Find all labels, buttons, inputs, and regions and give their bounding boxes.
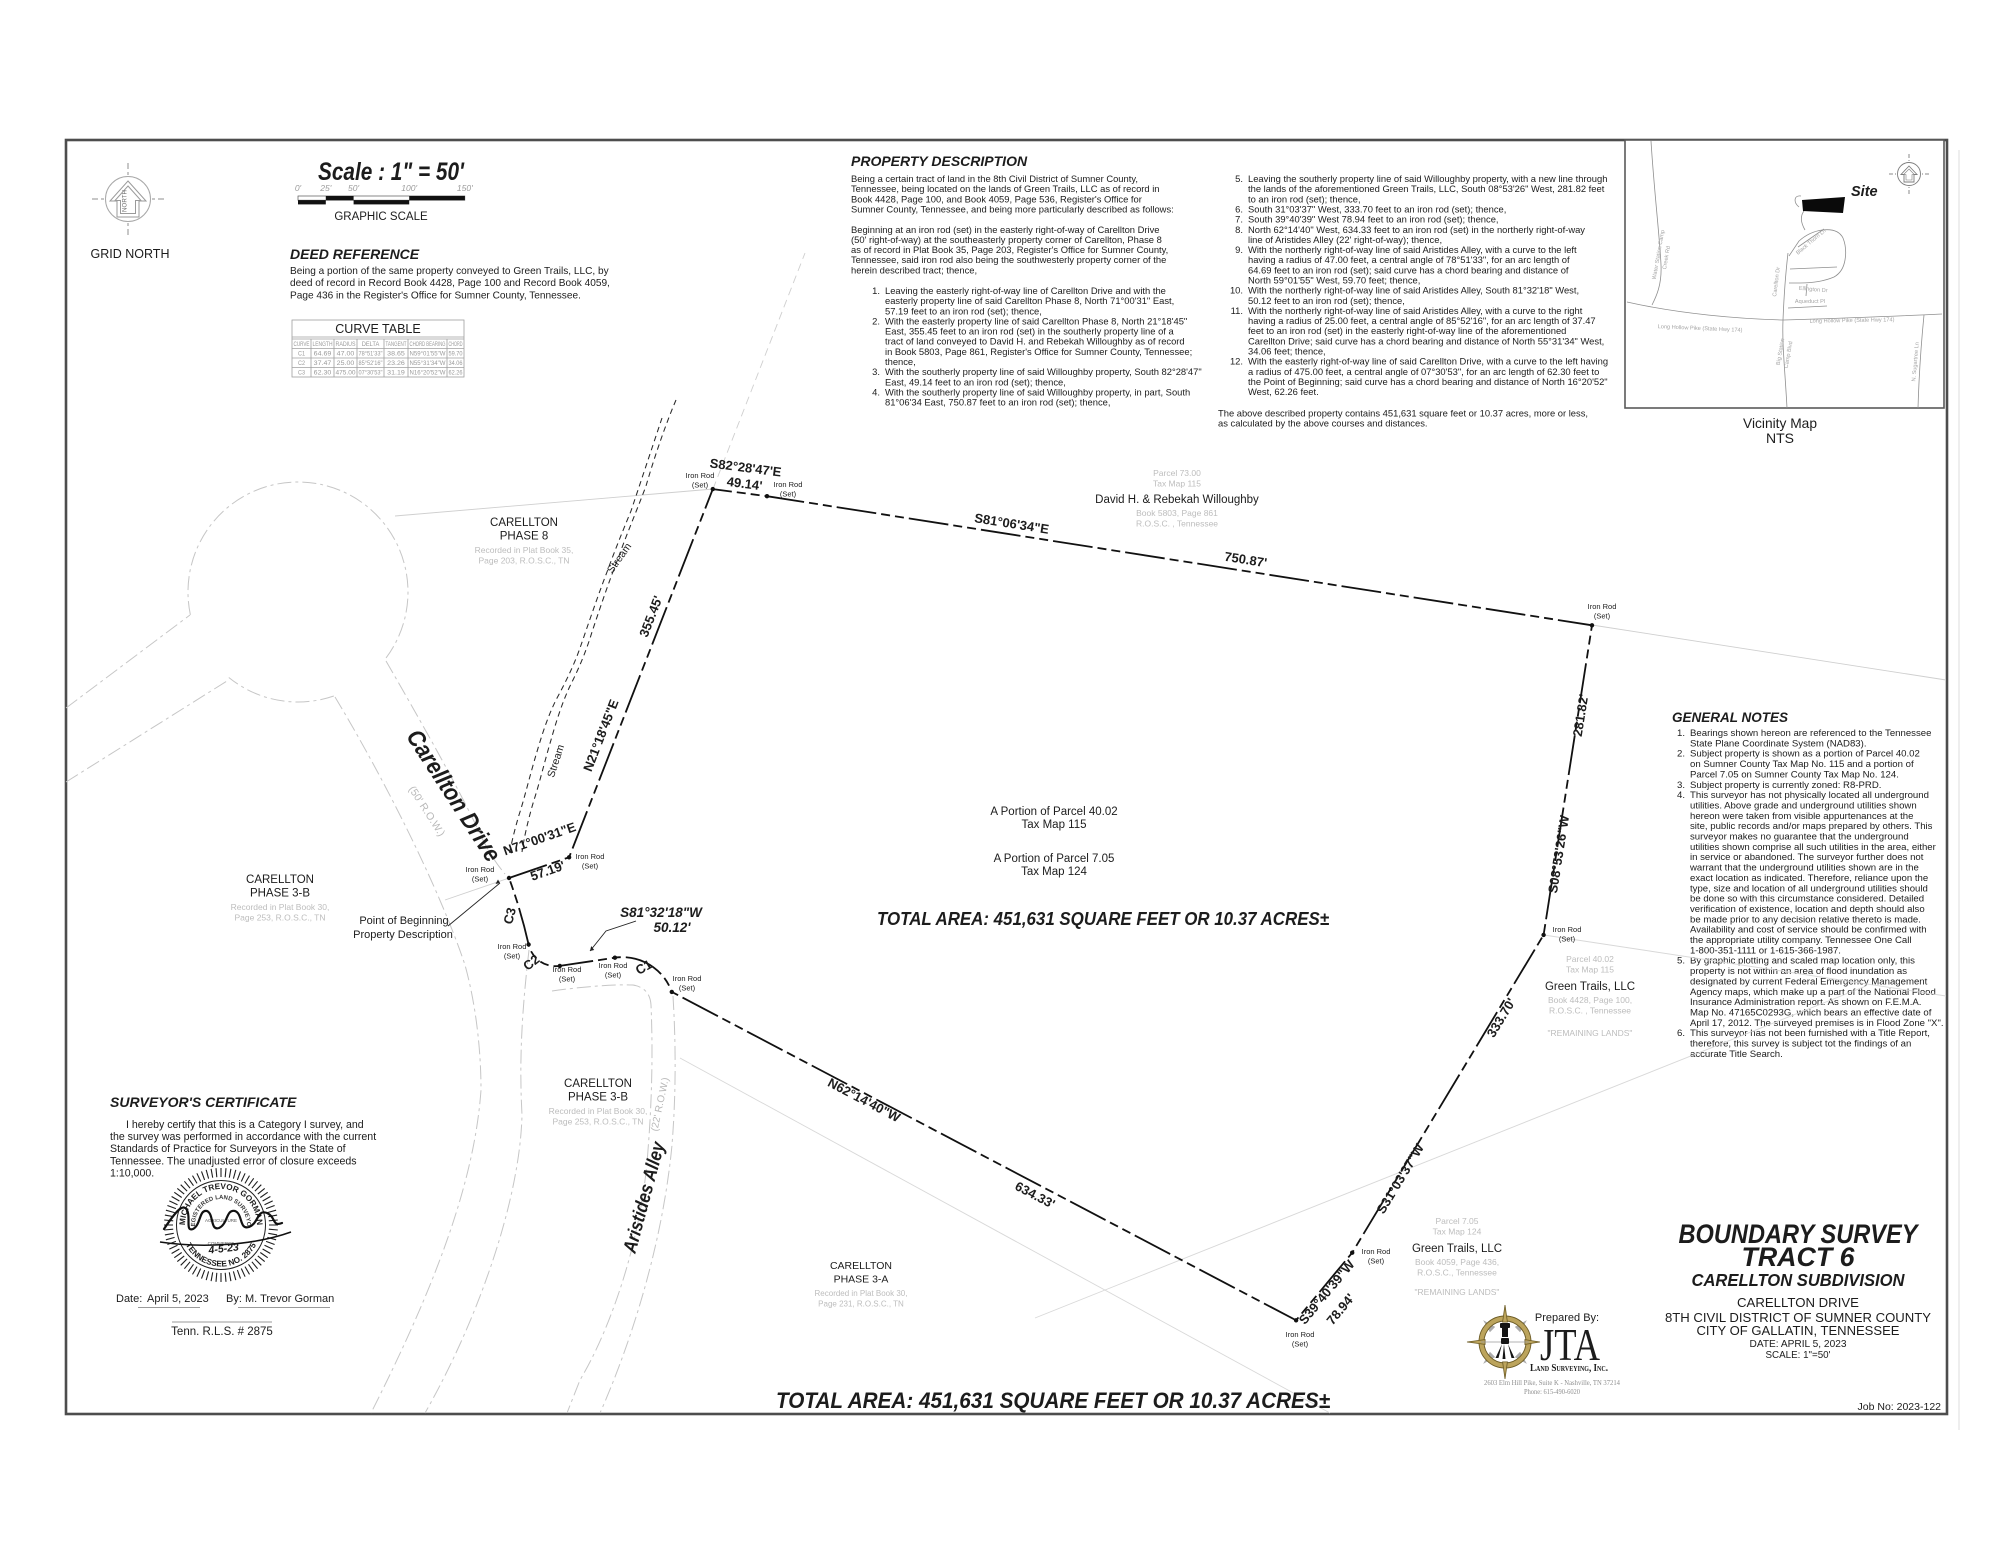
svg-text:Book 5803, Page 861: Book 5803, Page 861 bbox=[1136, 508, 1218, 518]
svg-text:150': 150' bbox=[457, 183, 473, 193]
svg-text:Iron Rod: Iron Rod bbox=[1286, 1330, 1315, 1339]
svg-text:Page 231, R.O.S.C., TN: Page 231, R.O.S.C., TN bbox=[818, 1300, 904, 1309]
svg-text:C1: C1 bbox=[298, 351, 305, 358]
svg-text:Being a portion of the same pr: Being a portion of the same property con… bbox=[290, 266, 610, 277]
svg-text:Iron Rod: Iron Rod bbox=[774, 480, 803, 489]
svg-text:CITY OF GALLATIN, TENNESSEE: CITY OF GALLATIN, TENNESSEE bbox=[1697, 1323, 1900, 1338]
svg-text:in service or abandoned. The s: in service or abandoned. The surveyor fu… bbox=[1690, 852, 1924, 863]
svg-text:Tax Map 124: Tax Map 124 bbox=[1021, 866, 1087, 878]
svg-text:NORTH: NORTH bbox=[122, 190, 129, 212]
svg-text:Iron Rod: Iron Rod bbox=[1588, 602, 1617, 611]
svg-text:64.69: 64.69 bbox=[314, 351, 332, 358]
svg-text:Recorded in Plat Book 30,: Recorded in Plat Book 30, bbox=[815, 1289, 908, 1298]
svg-text:Iron Rod: Iron Rod bbox=[673, 974, 702, 983]
svg-text:59.70: 59.70 bbox=[449, 351, 463, 358]
svg-text:the appropriate utility compan: the appropriate utility company. Tenness… bbox=[1690, 935, 1912, 946]
svg-text:2603 Elm Hill Pike, Suite K -: 2603 Elm Hill Pike, Suite K - Nashville,… bbox=[1484, 1379, 1620, 1387]
svg-text:CARELLTON SUBDIVISION: CARELLTON SUBDIVISION bbox=[1692, 1270, 1905, 1290]
svg-text:CHORD: CHORD bbox=[449, 341, 463, 348]
svg-text:Iron Rod: Iron Rod bbox=[1553, 925, 1582, 934]
svg-text:50': 50' bbox=[348, 183, 359, 193]
svg-text:31.19: 31.19 bbox=[387, 370, 405, 377]
svg-text:2.: 2. bbox=[1677, 749, 1685, 760]
svg-text:(Set): (Set) bbox=[559, 975, 576, 984]
svg-text:1.: 1. bbox=[872, 285, 880, 296]
svg-text:(Set): (Set) bbox=[582, 862, 599, 871]
svg-text:CARELLTON: CARELLTON bbox=[830, 1260, 892, 1272]
svg-text:Green Trails, LLC: Green Trails, LLC bbox=[1545, 981, 1635, 993]
svg-text:R.O.S.C., Tennessee: R.O.S.C., Tennessee bbox=[1417, 1268, 1497, 1278]
svg-text:0': 0' bbox=[295, 183, 302, 193]
svg-text:S81°32'18"W: S81°32'18"W bbox=[620, 905, 703, 920]
svg-text:TRACT 6: TRACT 6 bbox=[1742, 1242, 1856, 1272]
svg-text:April 17, 2012. The surveyed p: April 17, 2012. The surveyed premises is… bbox=[1690, 1018, 1944, 1029]
svg-text:PHASE 8: PHASE 8 bbox=[500, 531, 549, 543]
svg-text:(Set): (Set) bbox=[1594, 612, 1611, 621]
svg-text:Parcel 40.02: Parcel 40.02 bbox=[1566, 954, 1614, 964]
svg-text:Book 4059, Page 436,: Book 4059, Page 436, bbox=[1415, 1257, 1499, 1267]
svg-text:Property Description: Property Description bbox=[353, 929, 453, 941]
svg-text:100': 100' bbox=[401, 183, 417, 193]
svg-text:in Book 5803, Page 861, Regist: in Book 5803, Page 861, Register's Offic… bbox=[885, 346, 1192, 357]
svg-text:N55°31'34"W: N55°31'34"W bbox=[410, 359, 447, 367]
svg-text:CURVE: CURVE bbox=[294, 341, 310, 348]
svg-text:the survey was performed in ac: the survey was performed in accordance w… bbox=[110, 1131, 376, 1143]
svg-text:GRAPHIC SCALE: GRAPHIC SCALE bbox=[334, 211, 428, 223]
svg-text:David H. & Rebekah Willoughby: David H. & Rebekah Willoughby bbox=[1095, 494, 1259, 506]
svg-text:West, 62.26 feet.: West, 62.26 feet. bbox=[1248, 386, 1319, 397]
svg-text:TOTAL AREA: 451,631 SQUARE FEE: TOTAL AREA: 451,631 SQUARE FEET OR 10.37… bbox=[776, 1388, 1330, 1413]
svg-text:PHASE 3-A: PHASE 3-A bbox=[834, 1274, 889, 1286]
svg-text:CARELLTON: CARELLTON bbox=[564, 1078, 632, 1090]
svg-text:herein described tract; thence: herein described tract; thence, bbox=[851, 264, 977, 275]
svg-text:(Set): (Set) bbox=[472, 875, 489, 884]
svg-text:This surveyor has not physical: This surveyor has not physically located… bbox=[1690, 790, 1929, 801]
svg-text:Bearings shown hereon are refe: Bearings shown hereon are referenced to … bbox=[1690, 728, 1931, 739]
svg-text:25': 25' bbox=[319, 183, 331, 193]
svg-text:I hereby certify that this is: I hereby certify that this is a Category… bbox=[126, 1119, 364, 1131]
svg-text:62.30: 62.30 bbox=[314, 370, 332, 377]
svg-text:23.26: 23.26 bbox=[387, 360, 405, 367]
svg-text:DELTA: DELTA bbox=[362, 341, 380, 348]
svg-text:C3: C3 bbox=[298, 370, 305, 377]
svg-text:be done so with this circumsta: be done so with this circumstance consid… bbox=[1690, 894, 1924, 905]
svg-text:N59°01'55"W: N59°01'55"W bbox=[410, 350, 447, 358]
svg-text:Parcel 7.05: Parcel 7.05 bbox=[1436, 1216, 1479, 1226]
svg-text:85°52'16": 85°52'16" bbox=[359, 359, 383, 367]
svg-text:50.12': 50.12' bbox=[654, 920, 692, 935]
svg-text:1.: 1. bbox=[1677, 728, 1685, 739]
svg-text:By:: By: bbox=[226, 1293, 242, 1305]
svg-text:47.00: 47.00 bbox=[337, 351, 355, 358]
svg-text:as calculated by the above cou: as calculated by the above courses and d… bbox=[1218, 417, 1428, 428]
svg-text:475.00: 475.00 bbox=[336, 370, 356, 377]
svg-text:Page 253, R.O.S.C., TN: Page 253, R.O.S.C., TN bbox=[234, 913, 325, 923]
svg-text:SURVEYOR'S CERTIFICATE: SURVEYOR'S CERTIFICATE bbox=[110, 1094, 297, 1110]
svg-text:3.: 3. bbox=[872, 366, 880, 377]
svg-text:11.: 11. bbox=[1231, 305, 1243, 316]
svg-text:N16°20'52"W: N16°20'52"W bbox=[410, 369, 447, 377]
svg-text:9.: 9. bbox=[1235, 244, 1243, 255]
svg-text:Parcel 7.05 on Sumner County T: Parcel 7.05 on Sumner County Tax Map No.… bbox=[1690, 769, 1899, 780]
svg-text:37.47: 37.47 bbox=[314, 360, 332, 367]
svg-text:CHORD BEARING: CHORD BEARING bbox=[410, 341, 446, 348]
svg-text:CURVE TABLE: CURVE TABLE bbox=[335, 322, 420, 336]
svg-text:Scale : 1" = 50': Scale : 1" = 50' bbox=[318, 158, 465, 186]
svg-text:April 5, 2023: April 5, 2023 bbox=[147, 1293, 209, 1305]
svg-text:surveyor makes no guarantee th: surveyor makes no guarantee that the und… bbox=[1690, 832, 1909, 843]
svg-text:07°30'53": 07°30'53" bbox=[359, 369, 383, 377]
svg-text:By graphic plotting and scaled: By graphic plotting and scaled map locat… bbox=[1690, 956, 1915, 967]
svg-text:Sumner County, Tennessee, and: Sumner County, Tennessee, and being more… bbox=[851, 203, 1174, 214]
svg-text:38.65: 38.65 bbox=[387, 351, 405, 358]
svg-text:Iron Rod: Iron Rod bbox=[553, 965, 582, 974]
svg-text:CARELLTON: CARELLTON bbox=[246, 874, 314, 886]
svg-text:Iron Rod: Iron Rod bbox=[599, 961, 628, 970]
svg-text:81°06'34 East, 750.87 feet to: 81°06'34 East, 750.87 feet to an iron ro… bbox=[885, 397, 1110, 408]
svg-text:Iron Rod: Iron Rod bbox=[1362, 1247, 1391, 1256]
svg-text:Insurance Administration repor: Insurance Administration report. As show… bbox=[1690, 997, 1921, 1008]
svg-text:Green Trails, LLC: Green Trails, LLC bbox=[1412, 1243, 1502, 1255]
svg-text:GENERAL NOTES: GENERAL NOTES bbox=[1672, 710, 1788, 725]
svg-text:Iron Rod: Iron Rod bbox=[498, 942, 527, 951]
svg-text:exact location as indicated. T: exact location as indicated. Therefore, … bbox=[1690, 873, 1928, 884]
svg-text:deed of record in Record Book: deed of record in Record Book 4428, Page… bbox=[290, 278, 610, 289]
svg-text:M. Trevor Gorman: M. Trevor Gorman bbox=[245, 1293, 334, 1305]
svg-text:(Set): (Set) bbox=[1559, 935, 1576, 944]
svg-text:34.06: 34.06 bbox=[449, 360, 463, 367]
svg-text:DEED REFERENCE: DEED REFERENCE bbox=[290, 246, 420, 262]
svg-text:Standards of Practice for Surv: Standards of Practice for Surveyors in t… bbox=[110, 1143, 346, 1155]
svg-text:Tennessee. The unadjusted erro: Tennessee. The unadjusted error of closu… bbox=[110, 1155, 357, 1167]
svg-text:Tax Map 115: Tax Map 115 bbox=[1566, 965, 1614, 975]
svg-text:NTS: NTS bbox=[1766, 430, 1794, 446]
svg-text:SCALE: 1"=50': SCALE: 1"=50' bbox=[1766, 1349, 1831, 1361]
svg-text:Recorded in Plat Book 30,: Recorded in Plat Book 30, bbox=[549, 1106, 648, 1116]
svg-text:Recorded in Plat Book 35,: Recorded in Plat Book 35, bbox=[475, 545, 574, 555]
svg-text:4.: 4. bbox=[872, 387, 880, 398]
svg-text:(Set): (Set) bbox=[1292, 1340, 1309, 1349]
svg-text:Book 4428, Page 100,: Book 4428, Page 100, bbox=[1548, 995, 1632, 1005]
svg-text:2.: 2. bbox=[872, 315, 880, 326]
svg-text:hereon were taken from visible: hereon were taken from visible appurtena… bbox=[1690, 811, 1913, 822]
svg-text:(Set): (Set) bbox=[679, 984, 696, 993]
svg-text:R.O.S.C. , Tennessee: R.O.S.C. , Tennessee bbox=[1549, 1006, 1631, 1016]
svg-text:R.O.S.C. , Tennessee: R.O.S.C. , Tennessee bbox=[1136, 519, 1218, 529]
svg-text:10.: 10. bbox=[1230, 285, 1243, 296]
svg-text:Recorded in Plat Book 30,: Recorded in Plat Book 30, bbox=[231, 902, 330, 912]
svg-text:Iron Rod: Iron Rod bbox=[686, 471, 715, 480]
svg-text:Land Surveying, Inc.: Land Surveying, Inc. bbox=[1530, 1363, 1608, 1374]
svg-text:LENGTH: LENGTH bbox=[313, 341, 333, 348]
svg-text:8.: 8. bbox=[1235, 224, 1243, 235]
svg-text:TOTAL AREA: 451,631 SQUARE FEE: TOTAL AREA: 451,631 SQUARE FEET OR 10.37… bbox=[877, 908, 1330, 929]
svg-text:25.00: 25.00 bbox=[337, 360, 355, 367]
svg-text:Site: Site bbox=[1851, 184, 1878, 200]
svg-text:Subject property is shown as a: Subject property is shown as a portion o… bbox=[1690, 749, 1920, 760]
svg-text:CARELLTON: CARELLTON bbox=[490, 517, 558, 529]
svg-text:1:10,000.: 1:10,000. bbox=[110, 1167, 154, 1179]
svg-text:A Portion of Parcel 7.05: A Portion of Parcel 7.05 bbox=[994, 853, 1115, 865]
svg-text:5.: 5. bbox=[1677, 956, 1685, 967]
svg-text:Page 436 in the Register's Off: Page 436 in the Register's Office for Su… bbox=[290, 290, 581, 301]
svg-text:(Set): (Set) bbox=[780, 490, 797, 499]
svg-text:Tenn. R.L.S. # 2875: Tenn. R.L.S. # 2875 bbox=[171, 1326, 273, 1338]
svg-text:Point of Beginning: Point of Beginning bbox=[359, 915, 448, 927]
svg-text:62.26: 62.26 bbox=[449, 370, 463, 377]
svg-text:Phone: 615-490-6020: Phone: 615-490-6020 bbox=[1524, 1388, 1580, 1396]
svg-text:A Portion of Parcel 40.02: A Portion of Parcel 40.02 bbox=[990, 806, 1117, 818]
svg-text:TANGENT: TANGENT bbox=[386, 341, 407, 348]
svg-text:6.: 6. bbox=[1677, 1028, 1685, 1039]
svg-text:Tax Map 124: Tax Map 124 bbox=[1433, 1227, 1482, 1237]
svg-text:Iron Rod: Iron Rod bbox=[466, 865, 495, 874]
svg-text:(Set): (Set) bbox=[692, 481, 709, 490]
svg-text:Date:: Date: bbox=[116, 1293, 142, 1305]
svg-text:be made prior to any decision: be made prior to any decision relative t… bbox=[1690, 914, 1921, 925]
svg-text:(Set): (Set) bbox=[605, 971, 622, 980]
svg-text:AGRICULTURE: AGRICULTURE bbox=[205, 1218, 237, 1223]
svg-text:C2: C2 bbox=[298, 360, 305, 367]
svg-text:CARELLTON DRIVE: CARELLTON DRIVE bbox=[1737, 1295, 1859, 1310]
svg-text:"REMAINING LANDS": "REMAINING LANDS" bbox=[1548, 1028, 1633, 1038]
svg-text:5.: 5. bbox=[1235, 173, 1243, 184]
svg-text:Job No: 2023-122: Job No: 2023-122 bbox=[1858, 1401, 1942, 1413]
svg-text:"REMAINING LANDS": "REMAINING LANDS" bbox=[1415, 1287, 1500, 1297]
svg-text:Parcel 73.00: Parcel 73.00 bbox=[1153, 468, 1201, 478]
svg-text:designated by current Federal: designated by current Federal Emergency … bbox=[1690, 976, 1928, 987]
svg-text:therefore, this survey is subj: therefore, this survey is subject tot th… bbox=[1690, 1039, 1911, 1050]
svg-text:Page 203, R.O.S.C., TN: Page 203, R.O.S.C., TN bbox=[478, 556, 569, 566]
svg-text:4.: 4. bbox=[1677, 790, 1685, 801]
svg-text:(Set): (Set) bbox=[1368, 1257, 1385, 1266]
svg-text:Iron Rod: Iron Rod bbox=[576, 852, 605, 861]
svg-text:78°51'33": 78°51'33" bbox=[359, 350, 383, 358]
svg-text:PHASE 3-B: PHASE 3-B bbox=[250, 888, 310, 900]
svg-text:Page 253, R.O.S.C., TN: Page 253, R.O.S.C., TN bbox=[552, 1117, 643, 1127]
svg-text:Tax Map 115: Tax Map 115 bbox=[1153, 479, 1201, 489]
svg-text:Vicinity Map: Vicinity Map bbox=[1743, 415, 1817, 431]
svg-text:PROPERTY DESCRIPTION: PROPERTY DESCRIPTION bbox=[851, 153, 1028, 169]
svg-text:GRID NORTH: GRID NORTH bbox=[91, 247, 170, 261]
svg-text:12.: 12. bbox=[1230, 356, 1243, 367]
svg-text:PHASE 3-B: PHASE 3-B bbox=[568, 1092, 628, 1104]
svg-text:(Set): (Set) bbox=[504, 952, 521, 961]
svg-text:RADIUS: RADIUS bbox=[336, 341, 356, 348]
svg-text:Tax Map 115: Tax Map 115 bbox=[1022, 819, 1087, 831]
svg-text:Aqueduct Pl: Aqueduct Pl bbox=[1795, 299, 1825, 305]
